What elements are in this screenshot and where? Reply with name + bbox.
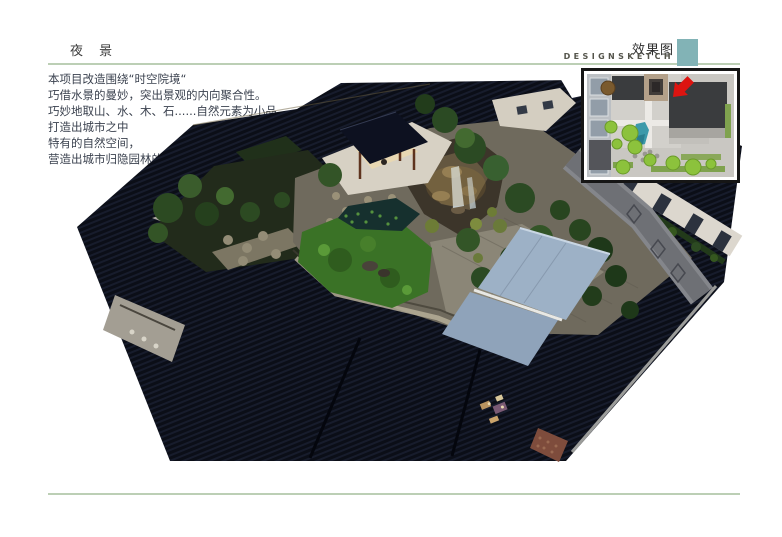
bottom-rule	[48, 493, 740, 495]
site-plan-content	[587, 74, 734, 177]
presentation-slide: 夜 景 效果图 DESIGNSKETCH 本项目改造围绕“时空院境“ 巧借水景的…	[0, 0, 782, 537]
site-plan-inset	[581, 68, 740, 183]
